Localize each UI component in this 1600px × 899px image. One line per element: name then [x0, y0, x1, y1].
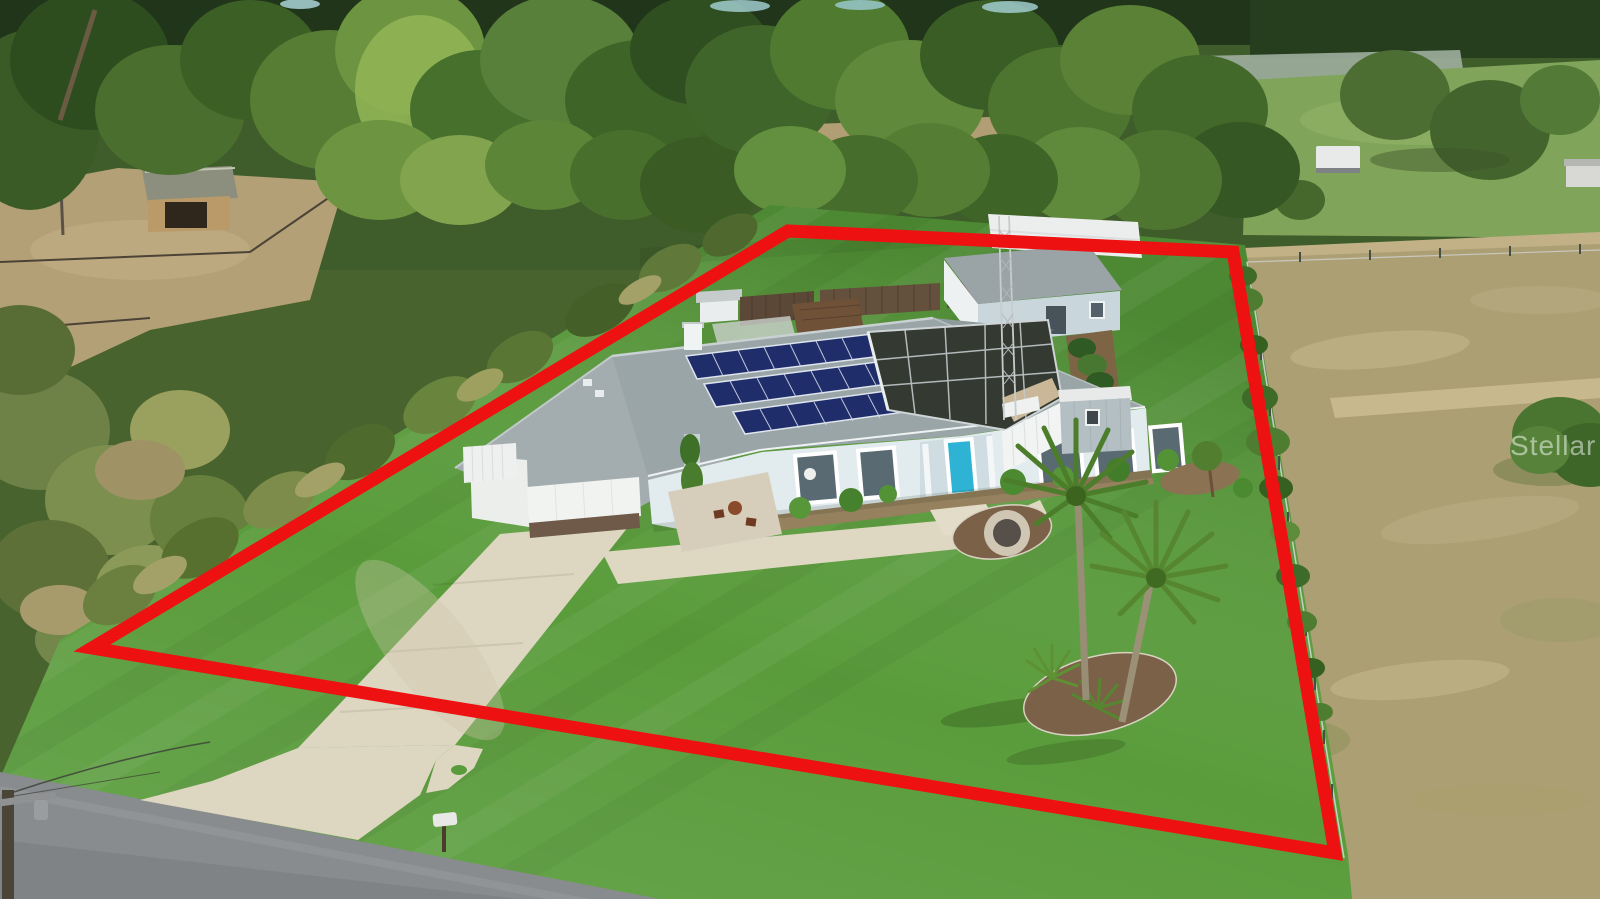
side-privacy-fence: [463, 443, 517, 483]
sky-glint: [710, 0, 770, 12]
aerial-scene: [0, 0, 1600, 899]
storage-shed: [696, 289, 742, 323]
skylight: [583, 379, 592, 386]
skylight: [595, 390, 604, 397]
utility-shed: [1058, 386, 1132, 454]
watermark-stellar-mls: Stellar MLS: [1510, 430, 1600, 462]
aerial-property-photo: Stellar MLS: [0, 0, 1600, 899]
small-tree: [1192, 441, 1222, 471]
bird-bath: [804, 468, 816, 480]
front-door: [944, 437, 979, 497]
barn: [142, 166, 238, 232]
neighbor-shed: [1566, 163, 1600, 187]
